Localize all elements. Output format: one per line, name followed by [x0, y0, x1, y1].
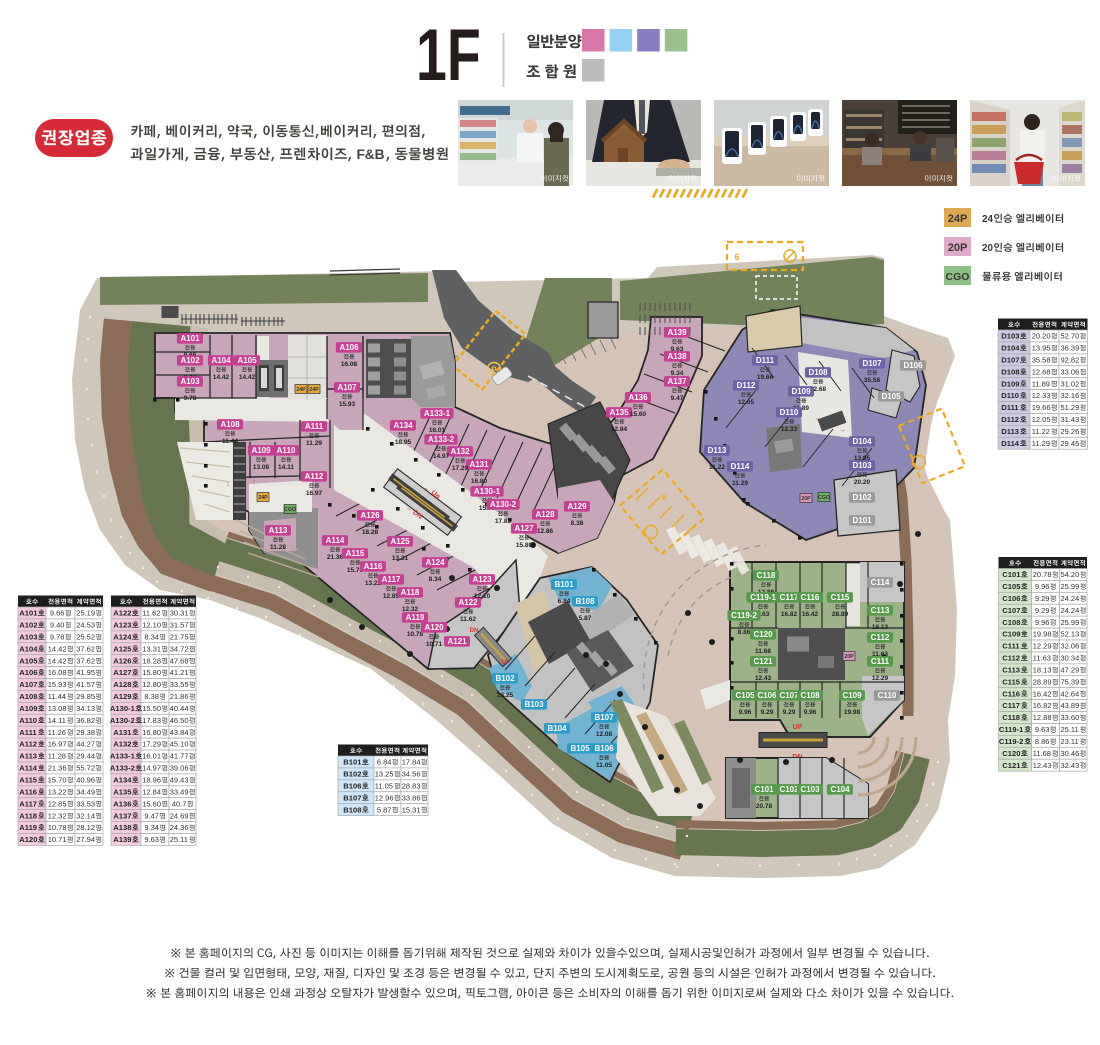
svg-text:12.85: 12.85 [48, 799, 67, 808]
svg-text:C110: C110 [878, 691, 897, 700]
svg-text:16.01: 16.01 [142, 752, 161, 761]
svg-text:A132: A132 [450, 447, 470, 456]
svg-text:15.70: 15.70 [48, 776, 67, 785]
svg-text:25.99: 25.99 [1061, 618, 1080, 627]
svg-text:D110: D110 [780, 408, 799, 417]
svg-text:44.27: 44.27 [76, 740, 95, 749]
svg-text:24.24: 24.24 [1061, 606, 1080, 615]
svg-text:5.87: 5.87 [377, 805, 392, 814]
svg-text:A101: A101 [19, 609, 38, 618]
svg-text:18.96: 18.96 [142, 776, 161, 785]
svg-text:18.13: 18.13 [1033, 665, 1052, 674]
svg-text:17.29: 17.29 [452, 465, 469, 472]
svg-text:12.08: 12.08 [596, 731, 613, 738]
svg-text:←: ← [815, 415, 822, 422]
svg-text:A117: A117 [382, 575, 401, 584]
svg-text:36.39: 36.39 [1061, 344, 1080, 353]
svg-text:D109: D109 [1001, 379, 1019, 388]
svg-text:C101: C101 [1002, 570, 1021, 579]
svg-text:A135: A135 [113, 787, 132, 796]
svg-text:20.78: 20.78 [756, 803, 773, 810]
svg-text:A134: A134 [113, 776, 132, 785]
svg-text:29.44: 29.44 [76, 752, 95, 761]
svg-text:54.20: 54.20 [1061, 570, 1080, 579]
svg-text:B107: B107 [343, 793, 361, 802]
svg-text:D108: D108 [1001, 367, 1019, 376]
svg-text:A119: A119 [406, 613, 425, 622]
svg-text:A131: A131 [469, 460, 489, 469]
svg-text:B101: B101 [554, 580, 574, 589]
svg-text:13.22: 13.22 [48, 787, 67, 796]
svg-text:A124: A124 [113, 632, 132, 641]
svg-text:25.11: 25.11 [170, 835, 188, 844]
svg-text:52.13: 52.13 [1061, 630, 1080, 639]
svg-text:92.82: 92.82 [1061, 355, 1080, 364]
svg-text:A124: A124 [425, 558, 445, 567]
svg-text:47.29: 47.29 [1061, 665, 1080, 674]
svg-text:DN: DN [470, 628, 479, 634]
svg-text:B102: B102 [343, 770, 361, 779]
svg-text:6: 6 [662, 493, 667, 502]
svg-text:31.02: 31.02 [1061, 379, 1080, 388]
svg-text:A103: A103 [180, 377, 200, 386]
svg-text:9.63: 9.63 [144, 835, 159, 844]
svg-text:33.06: 33.06 [1061, 367, 1080, 376]
svg-text:A136: A136 [628, 393, 648, 402]
svg-text:A110: A110 [277, 446, 296, 455]
svg-text:A130-2: A130-2 [110, 716, 135, 725]
svg-text:C118: C118 [757, 571, 776, 580]
svg-text:C113: C113 [1002, 665, 1020, 674]
svg-text:C111: C111 [871, 657, 890, 666]
svg-text:C105: C105 [1002, 582, 1021, 591]
svg-text:19.98: 19.98 [844, 709, 861, 716]
svg-text:B103: B103 [524, 700, 544, 709]
svg-text:A128: A128 [113, 680, 131, 689]
svg-text:33.60: 33.60 [1061, 713, 1080, 722]
svg-text:18.28: 18.28 [362, 529, 379, 536]
svg-text:41.95: 41.95 [76, 668, 95, 677]
svg-text:11.29: 11.29 [1032, 439, 1050, 448]
svg-text:31.43: 31.43 [1061, 415, 1080, 424]
svg-text:A116: A116 [19, 787, 37, 796]
svg-text:A111: A111 [19, 728, 37, 737]
svg-text:A107: A107 [337, 383, 357, 392]
svg-text:12.68: 12.68 [1032, 367, 1051, 376]
svg-text:C115: C115 [1002, 677, 1021, 686]
svg-text:→: → [839, 427, 846, 434]
svg-text:D114: D114 [1001, 439, 1020, 448]
svg-text:11.44: 11.44 [222, 438, 238, 445]
svg-text:A115: A115 [19, 776, 38, 785]
svg-text:14.97: 14.97 [433, 453, 450, 460]
svg-text:12.33: 12.33 [781, 426, 798, 433]
svg-text:25.99: 25.99 [1061, 582, 1080, 591]
svg-text:F&B: F&B [356, 147, 384, 162]
svg-text:A106: A106 [339, 343, 359, 352]
svg-text:8.34: 8.34 [144, 632, 159, 641]
svg-text:C119-2: C119-2 [999, 737, 1024, 746]
svg-text:9.96: 9.96 [804, 709, 817, 716]
svg-text:A120: A120 [19, 835, 37, 844]
svg-text:12.96: 12.96 [375, 793, 394, 802]
svg-text:29.38: 29.38 [76, 728, 95, 737]
svg-text:A137: A137 [113, 811, 131, 820]
svg-text:19.66: 19.66 [1032, 403, 1051, 412]
svg-text:D108: D108 [808, 368, 828, 377]
svg-text:A130-1: A130-1 [474, 487, 501, 496]
svg-text:15.93: 15.93 [339, 401, 356, 408]
svg-text:16.08: 16.08 [341, 361, 358, 368]
svg-text:32.06: 32.06 [1061, 642, 1080, 651]
svg-text:34.72: 34.72 [170, 644, 189, 653]
svg-text:A138: A138 [113, 823, 131, 832]
svg-text:14.97: 14.97 [142, 764, 161, 773]
svg-text:20.20: 20.20 [854, 479, 871, 486]
svg-text:16.80: 16.80 [471, 478, 488, 485]
svg-text:A130-2: A130-2 [490, 500, 517, 509]
svg-text:D107: D107 [1001, 355, 1019, 364]
svg-text:A117: A117 [19, 799, 37, 808]
svg-text:B104: B104 [547, 724, 567, 733]
svg-text:C107: C107 [1002, 606, 1020, 615]
svg-text:D107: D107 [862, 359, 882, 368]
svg-text:A128: A128 [535, 510, 555, 519]
svg-text:A113: A113 [269, 526, 288, 535]
svg-text:9.78: 9.78 [50, 632, 65, 641]
svg-text:A114: A114 [19, 764, 38, 773]
svg-text:D105: D105 [881, 392, 901, 401]
svg-text:A102: A102 [180, 356, 200, 365]
svg-text:25.19: 25.19 [76, 609, 95, 618]
svg-text:D103: D103 [1001, 332, 1019, 341]
svg-text:8.86: 8.86 [1035, 737, 1050, 746]
svg-text:B107: B107 [594, 713, 614, 722]
svg-text:9.96: 9.96 [739, 709, 752, 716]
svg-text:1F: 1F [416, 14, 481, 96]
svg-text:C120: C120 [753, 630, 773, 639]
svg-text:9.34: 9.34 [671, 370, 684, 377]
svg-text:30.46: 30.46 [1061, 749, 1080, 758]
svg-text:10.78: 10.78 [48, 823, 67, 832]
svg-text:C121: C121 [753, 657, 773, 666]
svg-text:C112: C112 [1002, 654, 1020, 663]
svg-text:10.71: 10.71 [426, 641, 443, 648]
svg-text:A101: A101 [180, 334, 200, 343]
svg-text:34.49: 34.49 [76, 787, 95, 796]
svg-text:20P: 20P [948, 242, 968, 254]
svg-text:B101: B101 [343, 758, 362, 767]
svg-text:D106: D106 [903, 361, 923, 370]
svg-text:D110: D110 [1001, 391, 1019, 400]
svg-text:24P: 24P [948, 213, 968, 225]
svg-text:6: 6 [734, 252, 739, 262]
svg-text:D111: D111 [756, 356, 775, 365]
svg-text:B106: B106 [594, 744, 614, 753]
svg-text:← UP: ← UP [784, 724, 803, 731]
svg-text:A137: A137 [667, 377, 687, 386]
svg-text:A139: A139 [113, 835, 131, 844]
svg-text:16.82: 16.82 [1033, 701, 1052, 710]
svg-text:13.31: 13.31 [392, 555, 409, 562]
svg-text:B108: B108 [343, 805, 361, 814]
svg-text:A127: A127 [514, 524, 534, 533]
svg-text:D113: D113 [708, 446, 727, 455]
svg-text:15.93: 15.93 [48, 680, 67, 689]
svg-text:C108: C108 [1002, 618, 1020, 627]
svg-text:16.08: 16.08 [48, 668, 67, 677]
svg-text:A113: A113 [19, 752, 37, 761]
svg-text:12.80: 12.80 [142, 680, 161, 689]
svg-text:24P: 24P [309, 387, 319, 393]
svg-text:D112: D112 [1001, 415, 1019, 424]
svg-text:20: 20 [982, 243, 993, 254]
svg-text:A119: A119 [19, 823, 37, 832]
svg-text:45.10: 45.10 [170, 740, 189, 749]
svg-text:16.80: 16.80 [142, 728, 161, 737]
svg-text:35.58: 35.58 [864, 377, 881, 384]
svg-text:C107: C107 [779, 691, 799, 700]
svg-text:11.28: 11.28 [270, 544, 286, 551]
svg-text:33.55: 33.55 [170, 680, 189, 689]
svg-text:C117: C117 [780, 593, 799, 602]
svg-text:A125: A125 [113, 644, 132, 653]
svg-text:D102: D102 [852, 493, 872, 502]
svg-text:12.05: 12.05 [738, 399, 755, 406]
svg-text:8.38: 8.38 [571, 520, 584, 527]
svg-text:12.43: 12.43 [1033, 761, 1052, 770]
svg-text:18.95: 18.95 [395, 439, 412, 446]
svg-text:12.32: 12.32 [402, 606, 419, 613]
svg-text:9.29: 9.29 [1035, 594, 1050, 603]
svg-text:24.24: 24.24 [1061, 594, 1080, 603]
svg-text:35.58: 35.58 [1032, 355, 1051, 364]
svg-text:15.60: 15.60 [142, 799, 161, 808]
svg-text:B105: B105 [570, 744, 590, 753]
svg-text:23.11: 23.11 [1061, 737, 1079, 746]
svg-text:↑: ↑ [252, 479, 256, 486]
svg-text:12.88: 12.88 [1033, 713, 1052, 722]
svg-text:C112: C112 [871, 633, 890, 642]
svg-text:A133-2: A133-2 [428, 435, 455, 444]
svg-text:A132: A132 [113, 740, 131, 749]
svg-text:A135: A135 [609, 408, 629, 417]
svg-text:↓: ↓ [226, 481, 230, 488]
svg-text:29.26: 29.26 [1061, 427, 1080, 436]
svg-text:24P: 24P [258, 495, 268, 501]
svg-text:21.36: 21.36 [327, 554, 344, 561]
svg-text:8.38: 8.38 [144, 692, 159, 701]
svg-text:A129: A129 [567, 502, 587, 511]
svg-text:A139: A139 [667, 328, 687, 337]
svg-text:11.68: 11.68 [755, 648, 771, 655]
svg-text:D114: D114 [731, 462, 750, 471]
svg-text:C106: C106 [757, 691, 777, 700]
svg-text:D111: D111 [1001, 403, 1019, 412]
svg-text:A120: A120 [424, 623, 444, 632]
svg-text:A136: A136 [113, 799, 131, 808]
svg-text:A104: A104 [19, 644, 38, 653]
svg-text:15.80: 15.80 [516, 542, 533, 549]
svg-text:8.34: 8.34 [429, 576, 442, 583]
svg-text:10.78: 10.78 [407, 631, 424, 638]
svg-text:C119-1: C119-1 [999, 725, 1024, 734]
svg-text:33.86: 33.86 [402, 793, 421, 802]
svg-text:75.39: 75.39 [1061, 677, 1080, 686]
svg-text:D103: D103 [852, 461, 872, 470]
svg-text:B106: B106 [343, 781, 361, 790]
svg-text:41.21: 41.21 [170, 668, 189, 677]
svg-text:14.11: 14.11 [278, 464, 294, 471]
svg-text:A109: A109 [251, 446, 271, 455]
svg-text:C121: C121 [1002, 761, 1021, 770]
svg-text:9.96: 9.96 [1035, 618, 1050, 627]
svg-text:20P: 20P [844, 654, 854, 660]
svg-text:46.50: 46.50 [170, 716, 189, 725]
svg-text:17.83: 17.83 [495, 518, 512, 525]
svg-text:15.31: 15.31 [402, 805, 421, 814]
svg-text:34.13: 34.13 [76, 704, 95, 713]
svg-text:A106: A106 [19, 668, 37, 677]
svg-text:A115: A115 [346, 549, 365, 558]
svg-text:9.34: 9.34 [144, 823, 159, 832]
svg-text:13.95: 13.95 [1032, 344, 1051, 353]
svg-text:A131: A131 [113, 728, 132, 737]
svg-text:24P: 24P [296, 387, 306, 393]
svg-text:C113: C113 [871, 606, 890, 615]
svg-text:42.64: 42.64 [1061, 689, 1080, 698]
svg-text:A127: A127 [113, 668, 131, 677]
svg-text:6.84: 6.84 [377, 758, 392, 767]
svg-text:14.42: 14.42 [48, 656, 67, 665]
svg-text:11.05: 11.05 [375, 781, 393, 790]
svg-text:D104: D104 [1001, 344, 1020, 353]
svg-text:52.70: 52.70 [1061, 332, 1080, 341]
svg-text:15.60: 15.60 [630, 411, 647, 418]
svg-text:14.11: 14.11 [48, 716, 66, 725]
svg-text:A110: A110 [19, 716, 37, 725]
svg-text:A126: A126 [113, 656, 131, 665]
svg-text:A133-1: A133-1 [110, 752, 136, 761]
svg-text:C103: C103 [800, 785, 820, 794]
svg-text:D112: D112 [737, 381, 756, 390]
svg-text:27.94: 27.94 [76, 835, 95, 844]
svg-text:14.42: 14.42 [239, 374, 256, 381]
svg-text:C101: C101 [754, 785, 774, 794]
svg-text:12.33: 12.33 [1032, 391, 1051, 400]
svg-text:32.14: 32.14 [76, 811, 95, 820]
svg-text:A123: A123 [113, 621, 131, 630]
svg-text:A133-1: A133-1 [424, 409, 451, 418]
svg-text:10.71: 10.71 [48, 835, 67, 844]
svg-text:C119-1: C119-1 [750, 593, 776, 602]
svg-text:CGO: CGO [946, 271, 970, 283]
svg-text:16.01: 16.01 [429, 427, 446, 434]
svg-text:17.29: 17.29 [142, 740, 161, 749]
svg-text:A111: A111 [305, 422, 324, 431]
svg-text:43.89: 43.89 [1061, 701, 1080, 710]
svg-text:40.7: 40.7 [172, 799, 187, 808]
svg-text:C104: C104 [830, 785, 850, 794]
svg-text:CGO: CGO [818, 495, 830, 501]
svg-text:12.84: 12.84 [611, 426, 628, 433]
svg-text:21.36: 21.36 [48, 764, 67, 773]
svg-text:12.29: 12.29 [1033, 642, 1052, 651]
svg-text:6.84: 6.84 [558, 598, 571, 605]
svg-text:C115: C115 [831, 593, 850, 602]
svg-text:14.42: 14.42 [213, 374, 230, 381]
svg-text:20P: 20P [801, 496, 811, 502]
svg-text:24.53: 24.53 [76, 621, 95, 630]
svg-text:12.05: 12.05 [1032, 415, 1051, 424]
svg-text:30.34: 30.34 [1061, 654, 1080, 663]
svg-text:C105: C105 [735, 691, 755, 700]
svg-text:28.89: 28.89 [832, 611, 849, 618]
svg-text:12.43: 12.43 [755, 675, 772, 682]
svg-text:A129: A129 [113, 692, 131, 701]
svg-text:11.62: 11.62 [460, 616, 476, 623]
svg-text:43.84: 43.84 [170, 728, 189, 737]
svg-text:D104: D104 [852, 437, 872, 446]
svg-text:A104: A104 [211, 356, 231, 365]
svg-text:A105: A105 [237, 356, 257, 365]
svg-text:A134: A134 [393, 421, 413, 430]
svg-text:A126: A126 [360, 511, 380, 520]
svg-text:15.80: 15.80 [142, 668, 161, 677]
svg-text:11.29: 11.29 [306, 440, 322, 447]
svg-text:16.97: 16.97 [48, 740, 67, 749]
svg-text:25.11: 25.11 [1061, 725, 1079, 734]
svg-text:37.62: 37.62 [76, 644, 95, 653]
svg-text:C108: C108 [800, 691, 820, 700]
svg-text:9.40: 9.40 [50, 621, 65, 630]
svg-text:9.29: 9.29 [1035, 606, 1050, 615]
svg-text:12.32: 12.32 [48, 811, 67, 820]
svg-text:41.57: 41.57 [76, 680, 95, 689]
svg-text:16.82: 16.82 [781, 611, 798, 618]
svg-text:A122: A122 [113, 609, 131, 618]
svg-text:B102: B102 [495, 674, 515, 683]
svg-text:40.96: 40.96 [76, 776, 95, 785]
svg-text:20.78: 20.78 [1033, 570, 1052, 579]
svg-text:D113: D113 [1001, 427, 1019, 436]
svg-text:9.47: 9.47 [671, 395, 684, 402]
svg-text:12.10: 12.10 [474, 593, 491, 600]
svg-text:33.53: 33.53 [76, 799, 95, 808]
svg-text:A125: A125 [390, 537, 410, 546]
svg-text:30.31: 30.31 [170, 609, 189, 618]
svg-text:9.66: 9.66 [50, 609, 65, 618]
svg-text:C111: C111 [1002, 642, 1020, 651]
svg-text:13.08: 13.08 [48, 704, 67, 713]
svg-text:A121: A121 [447, 637, 467, 646]
svg-text:49.43: 49.43 [170, 776, 189, 785]
svg-text:13.25: 13.25 [497, 692, 514, 699]
svg-text:39.06: 39.06 [170, 764, 189, 773]
svg-text:A102: A102 [19, 621, 37, 630]
svg-text:9.63: 9.63 [1035, 725, 1050, 734]
svg-text:C109: C109 [1002, 630, 1020, 639]
svg-text:12.10: 12.10 [142, 621, 161, 630]
svg-text:C109: C109 [842, 691, 862, 700]
svg-text:12.84: 12.84 [142, 787, 161, 796]
svg-text:21.75: 21.75 [170, 632, 189, 641]
svg-text:D109: D109 [791, 387, 811, 396]
svg-text:17.84: 17.84 [402, 758, 421, 767]
svg-text:16.42: 16.42 [1033, 689, 1052, 698]
svg-text:B108: B108 [575, 597, 595, 606]
svg-text:32.16: 32.16 [1061, 391, 1080, 400]
